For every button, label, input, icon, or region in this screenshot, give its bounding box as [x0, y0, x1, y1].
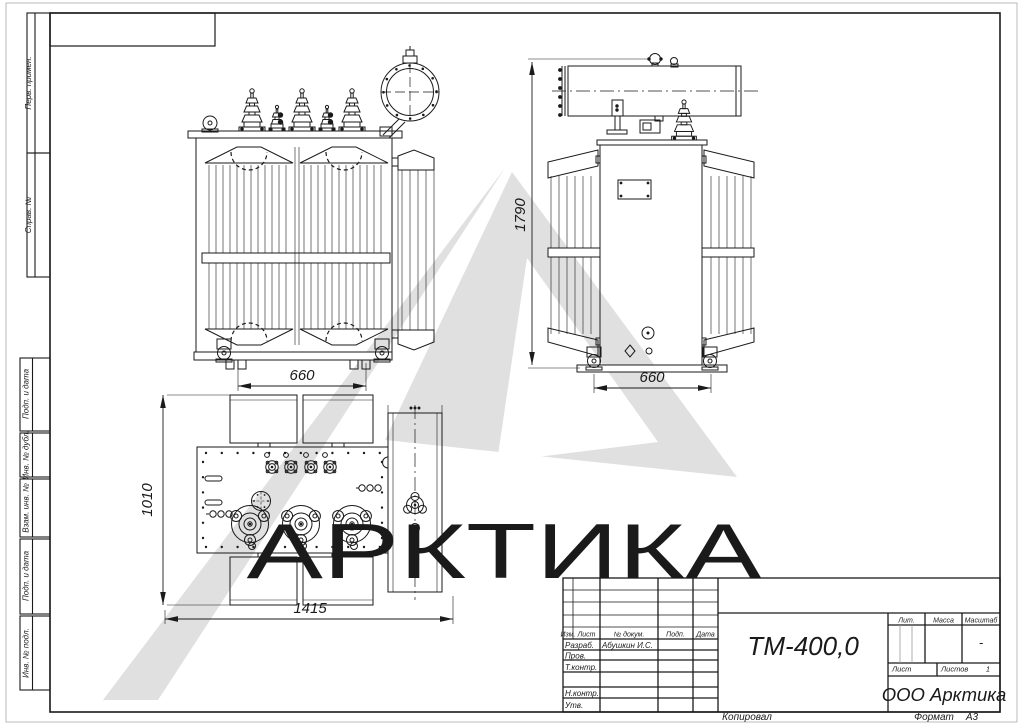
margin-label-vzam-inv: Взам. инв. №	[22, 483, 31, 533]
row-utv-label: Утв.	[564, 701, 583, 710]
scale-value: -	[979, 635, 984, 650]
mass-label: Масса	[933, 618, 954, 625]
row-razrab-name: Абушкин И.С.	[601, 641, 653, 650]
plan-view: 1010 1415	[139, 395, 453, 624]
side-height-dimension: 1790	[512, 59, 650, 368]
col-list: Лист	[576, 632, 595, 639]
dim-side-width: 660	[639, 369, 665, 386]
dim-side-height: 1790	[512, 198, 529, 232]
row-razrab-label: Разраб.	[565, 641, 594, 650]
margin-label-perv-primen: Перв. примен.	[24, 56, 33, 109]
drawing-sheet: АРКТИКА	[0, 0, 1024, 725]
copied-label: Копировал	[722, 712, 772, 723]
paper-edge	[6, 3, 1017, 722]
row-nkontr-label: Н.контр.	[565, 689, 599, 698]
sheet-footer: Копировал Формат А3	[722, 712, 978, 723]
sheets-label: Листов	[940, 665, 968, 674]
top-left-reference-cell	[50, 13, 215, 46]
front-view: 660	[188, 46, 439, 391]
col-doc: № докум.	[614, 631, 645, 639]
col-podp: Подп.	[666, 631, 685, 639]
margin-label-inv-podl: Инв. № подл.	[22, 628, 31, 678]
sheet-label: Лист	[891, 665, 911, 674]
plan-length-dimension: 1415	[165, 596, 453, 624]
margin-label-podp-data-2: Подп. и дата	[22, 550, 31, 601]
format-label: Формат	[914, 712, 954, 723]
sheets-value: 1	[986, 665, 990, 674]
col-izm: Изм.	[561, 632, 576, 639]
side-width-dimension: 660	[594, 369, 711, 393]
drawing-frame	[50, 13, 1000, 712]
scale-label: Масштаб	[965, 617, 999, 625]
drawing-designation: ТМ-400,0	[747, 631, 859, 661]
margin-label-sprav: Справ. №	[24, 196, 33, 233]
company-name: ООО Арктика	[882, 684, 1007, 705]
title-block: Изм. Лист № докум. Подп. Дата Разраб. Аб…	[561, 578, 1007, 712]
format-value: А3	[965, 712, 979, 723]
row-prov-label: Пров.	[565, 652, 586, 661]
dim-plan-length: 1415	[293, 600, 327, 617]
side-view: 1790 660	[512, 54, 758, 394]
margin-label-inv-dubl: Инв. № дубл.	[22, 430, 31, 479]
margin-label-podp-data-1: Подп. и дата	[22, 368, 31, 419]
lit-label: Лит.	[897, 618, 914, 625]
margin-blocks: Перв. примен. Справ. № Подп. и дата Инв.…	[20, 13, 50, 690]
dim-plan-height: 1010	[139, 483, 156, 517]
front-width-dimension: 660	[238, 363, 366, 391]
col-data: Дата	[695, 632, 715, 639]
row-tkontr-label: Т.контр.	[565, 663, 597, 672]
dim-front-width: 660	[289, 367, 315, 384]
